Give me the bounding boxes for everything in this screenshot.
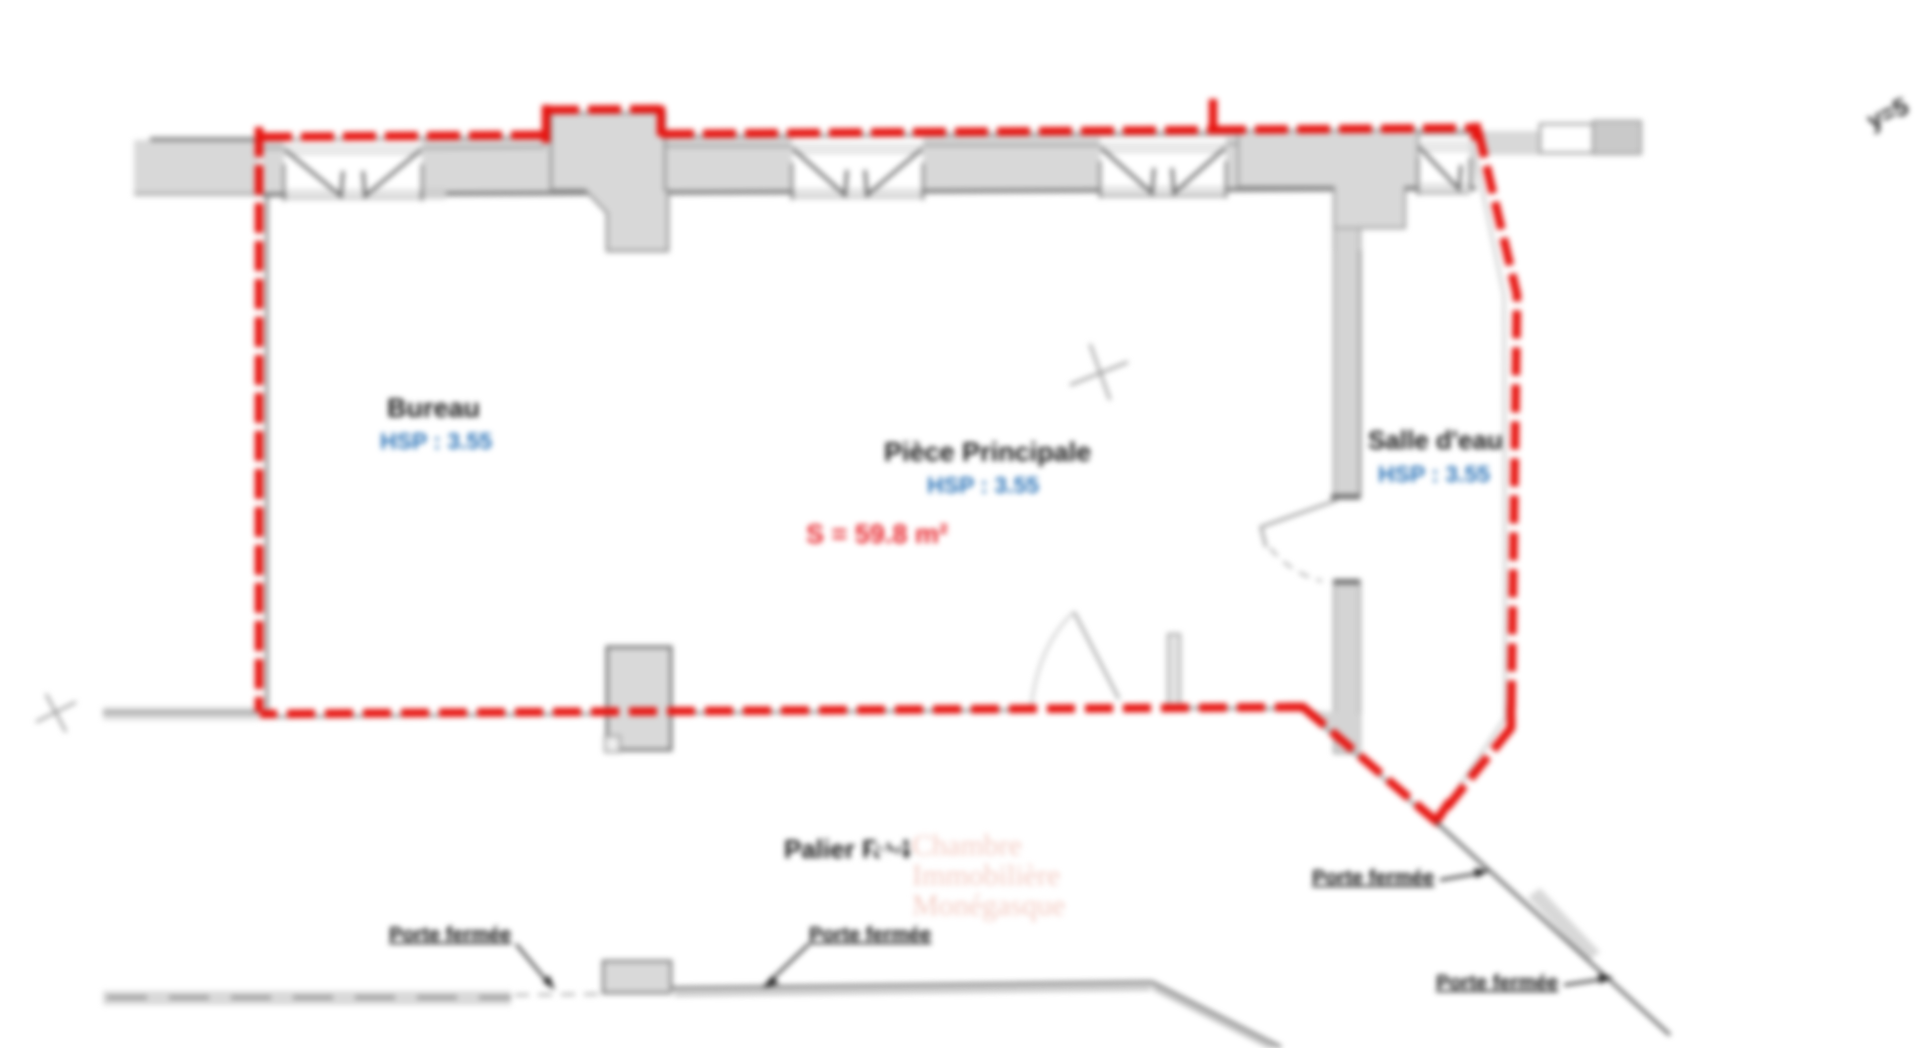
svg-text:HSP : 3.55: HSP : 3.55: [380, 428, 492, 454]
svg-text:Porte fermée: Porte fermée: [1312, 867, 1434, 889]
svg-text:Salle d'eau: Salle d'eau: [1368, 425, 1503, 455]
svg-text:Pièce Principale: Pièce Principale: [884, 437, 1091, 467]
svg-text:Porte fermée: Porte fermée: [1436, 972, 1558, 994]
svg-text:HSP : 3.55: HSP : 3.55: [927, 472, 1039, 498]
svg-text:y=5: y=5: [1863, 92, 1913, 135]
svg-text:Monégasque: Monégasque: [912, 889, 1065, 922]
svg-text:Chambre: Chambre: [912, 829, 1022, 862]
svg-text:Porte fermée: Porte fermée: [809, 924, 931, 946]
svg-text:Porte fermée: Porte fermée: [389, 924, 511, 946]
svg-text:S = 59.8 m²: S = 59.8 m²: [806, 519, 948, 549]
svg-text:HSP : 3.55: HSP : 3.55: [1378, 461, 1490, 487]
svg-text:Bureau: Bureau: [387, 393, 480, 423]
svg-text:Immobilière: Immobilière: [912, 859, 1060, 892]
